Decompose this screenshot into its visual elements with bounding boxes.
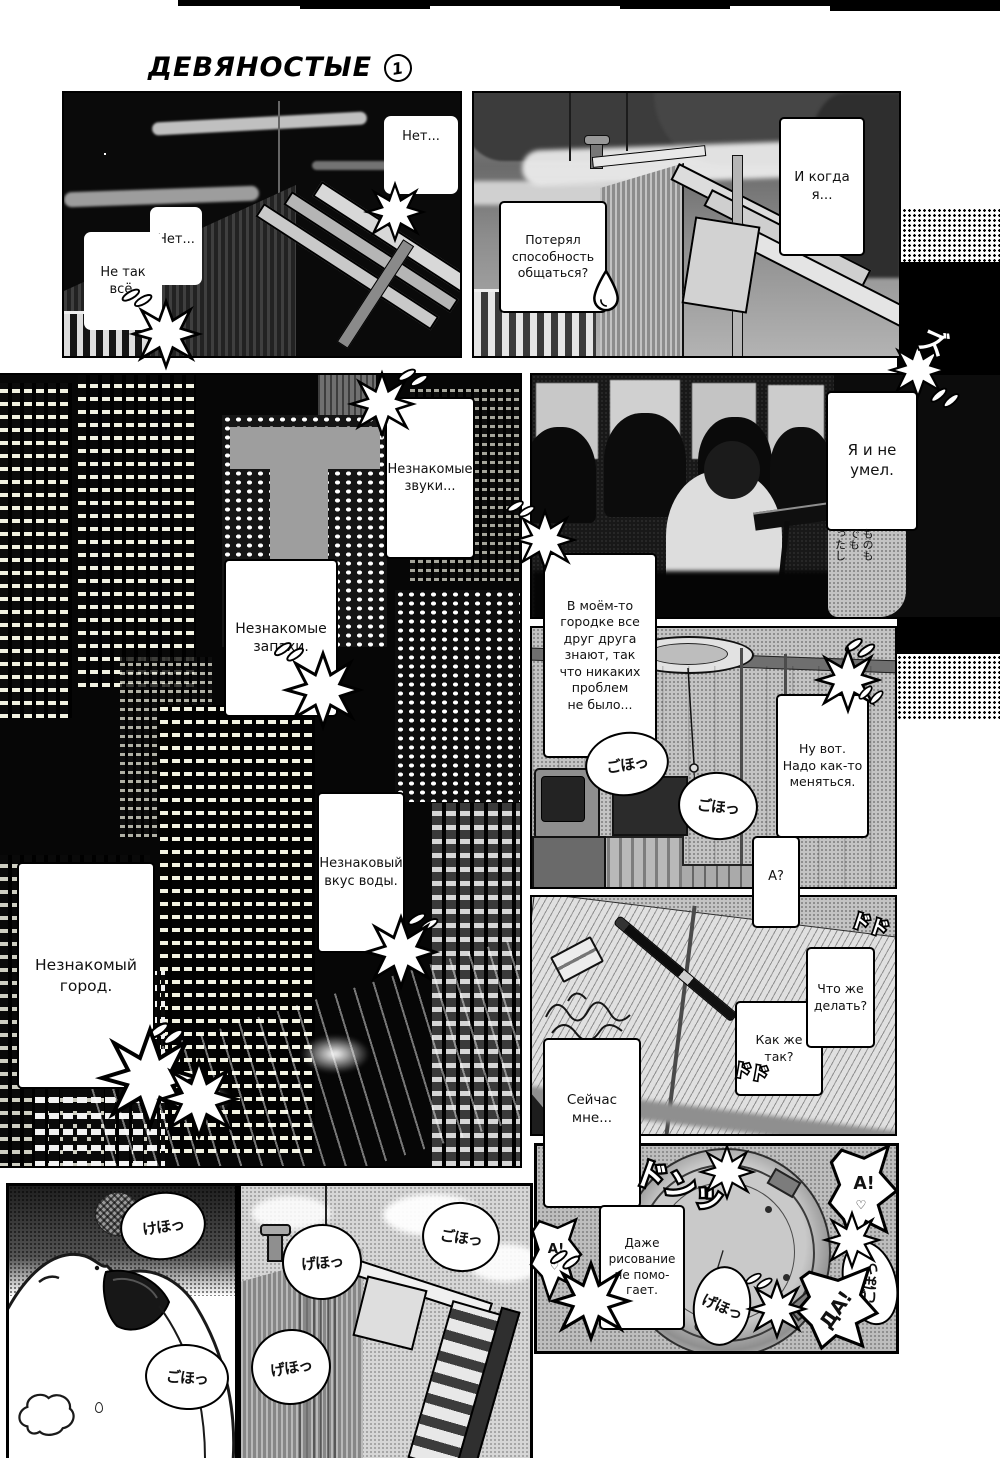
bubble-text: Ну вот. Надо как-то меняться. <box>783 741 863 791</box>
tv-screen <box>541 776 585 822</box>
antenna-line <box>626 93 628 151</box>
teardrop <box>591 268 621 314</box>
student-silhouette <box>530 427 596 523</box>
tilted-panel <box>682 216 761 313</box>
page-title: ДЕВЯНОСТЫЕ 1 <box>148 52 412 83</box>
scan-edge-bump <box>620 4 730 9</box>
flash-burst <box>552 1262 630 1340</box>
speech-bubble: А? <box>752 836 800 928</box>
thought-cloud <box>15 1386 77 1442</box>
light-screw <box>765 1206 772 1213</box>
door-frame-line <box>740 648 743 887</box>
sweat-drop <box>95 1402 103 1413</box>
roof-panel <box>352 1275 427 1350</box>
antenna-line <box>569 93 571 161</box>
chimney-cap <box>260 1224 291 1236</box>
flash-burst <box>285 652 361 728</box>
speed-dashes <box>928 388 962 410</box>
dodo-sfx-text: ドド <box>842 896 894 966</box>
ceiling-light-inner <box>648 643 728 665</box>
chapter-title-text: ДЕВЯНОСТЫЕ <box>148 52 372 83</box>
corrugated-wall <box>600 163 684 356</box>
lit-building <box>395 590 520 802</box>
flash-burst <box>160 1060 238 1138</box>
bubble-text: Незнаковый вкус воды. <box>319 855 402 889</box>
flash-burst <box>700 1145 754 1199</box>
flash-burst <box>748 1280 806 1338</box>
flash-burst <box>350 372 414 436</box>
headlight-glow <box>300 1035 370 1073</box>
flash-burst <box>366 183 424 241</box>
bubble-text: Сейчас мне... <box>567 1092 617 1128</box>
bubble-text: Незнакомые звуки... <box>387 461 472 495</box>
speech-bubble: Я и не умел. <box>826 391 918 531</box>
chimney-cap <box>584 135 610 145</box>
flash-burst <box>515 510 575 570</box>
skyscraper <box>78 375 196 687</box>
svg-text:ドド: ドド <box>848 909 891 942</box>
zu-sfx-text: ズ <box>902 316 962 376</box>
scan-edge-bump <box>300 5 430 9</box>
bubble-text: А? <box>768 868 784 885</box>
bubble-text: Я и не умел. <box>848 441 897 481</box>
skyscraper <box>0 383 72 718</box>
bubble-text: Нет... <box>402 128 440 145</box>
shout-bubble: ДА! <box>796 1266 880 1348</box>
student-silhouette <box>770 427 832 515</box>
margin-ink-fade-top <box>897 208 1000 266</box>
speech-bubble: И когда я... <box>779 117 865 256</box>
night-cloud <box>64 186 259 208</box>
svg-text:ズ: ズ <box>914 322 953 364</box>
night-cloud <box>152 111 367 135</box>
bubble-text: Что же делать? <box>814 981 867 1014</box>
boy-head <box>704 441 760 499</box>
bubble-text: В моём-то городке все друг друга знают, … <box>560 598 641 714</box>
speed-dashes <box>856 686 886 706</box>
antenna-line <box>278 101 280 193</box>
margin-ink-fade-bottom <box>897 650 1000 720</box>
speech-bubble: Ну вот. Надо как-то меняться. <box>776 694 869 838</box>
svg-text:ドド: ドド <box>732 1060 770 1086</box>
star <box>104 153 106 155</box>
chapter-number-badge: 1 <box>382 51 414 83</box>
svg-text:А!: А! <box>853 1174 874 1194</box>
margin-japanese-text: ものも でも ったし <box>830 528 874 624</box>
flash-burst <box>824 1212 880 1268</box>
bubble-text: Потерял способность общаться? <box>512 232 594 282</box>
speech-bubble: В моём-то городке все друг друга знают, … <box>543 553 657 758</box>
scan-edge-bump <box>830 5 1000 11</box>
tv-stand <box>532 836 606 889</box>
dodo-sfx-text: ドド <box>722 1046 778 1110</box>
bubble-text: Незнакомый город. <box>35 955 137 996</box>
speech-bubble: Сейчас мне... <box>543 1038 641 1208</box>
svg-text:♡: ♡ <box>855 1198 866 1212</box>
flash-burst <box>365 916 437 988</box>
bubble-text: Нет... <box>157 231 195 248</box>
bubble-text: И когда я... <box>794 169 850 205</box>
flash-burst <box>132 300 200 368</box>
